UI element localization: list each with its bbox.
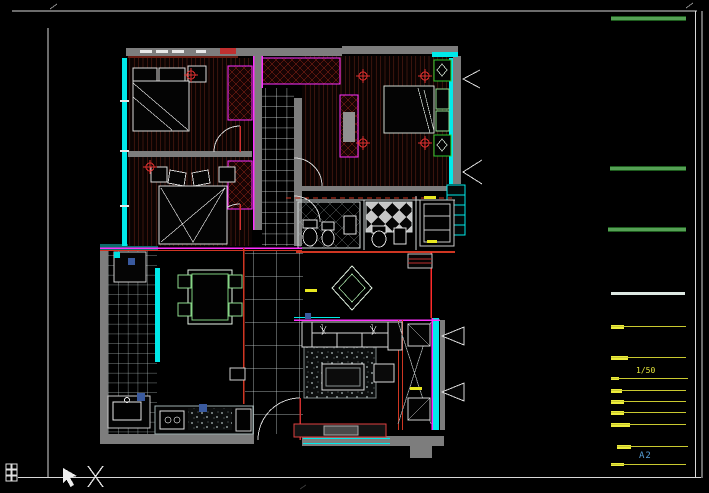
corridor-tile-floor [262, 88, 294, 246]
closet-inner-gray [343, 112, 355, 142]
coffee-table [322, 364, 394, 390]
sofa-set [302, 322, 402, 350]
storage-room [420, 200, 454, 246]
blue-floor-mark [305, 313, 311, 319]
viewport-grid-icon[interactable] [6, 464, 17, 481]
bedroom2-bed [151, 167, 235, 244]
wall-red-patch [220, 48, 236, 54]
tv-cabinet [294, 424, 386, 437]
foyer-diamond-inlay [332, 266, 372, 310]
x-marker-icon[interactable] [88, 466, 103, 487]
shoe-cabinet [408, 254, 432, 268]
dining-table-set [178, 270, 242, 324]
floor-plan-drawing[interactable] [0, 0, 709, 493]
cad-model-space[interactable]: 1/50 A2 [0, 0, 709, 493]
